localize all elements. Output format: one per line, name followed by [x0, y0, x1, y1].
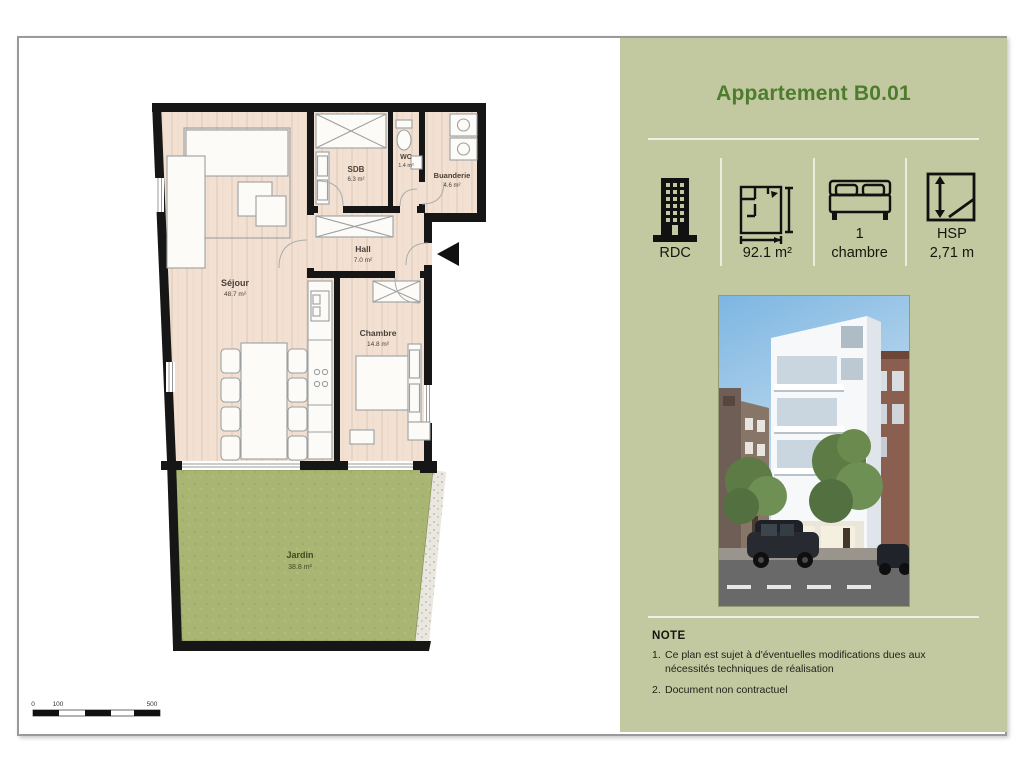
- note-item-2-number: 2.: [652, 684, 665, 698]
- room-area-buanderie: 4.6 m²: [443, 183, 460, 189]
- building-icon: [651, 176, 699, 244]
- scale-label-500: 500: [147, 701, 158, 708]
- note-item-2: 2. Document non contractuel: [652, 684, 975, 698]
- dining-table: [221, 343, 307, 460]
- spec-surface: 92.1 m²: [720, 158, 812, 266]
- spec-floor-line2: RDC: [659, 244, 690, 264]
- room-label-sejour: Séjour: [221, 278, 250, 288]
- floorplan-icon: [738, 176, 796, 244]
- note-heading: NOTE: [652, 630, 975, 642]
- floor-plan: Séjour 48.7 m² Chambre 14.8 m² SDB 6.3 m…: [0, 0, 620, 768]
- scale-bar: 0 100 500: [31, 701, 160, 716]
- room-area-jardin: 38.8 m²: [288, 564, 312, 571]
- shower: [316, 114, 386, 148]
- room-label-jardin: Jardin: [286, 550, 313, 560]
- note-item-2-text: Document non contractuel: [665, 684, 975, 698]
- note-item-1-text: Ce plan est sujet à d'éventuelles modifi…: [665, 649, 975, 677]
- scale-label-0: 0: [31, 701, 35, 708]
- spec-height-line2: 2,71 m: [930, 244, 974, 264]
- spec-height: HSP 2,71 m: [905, 158, 997, 266]
- room-area-chambre: 14.8 m²: [367, 341, 390, 348]
- kitchen-counter: [308, 281, 332, 459]
- garden: [176, 470, 446, 652]
- note-section: NOTE 1. Ce plan est sujet à d'éventuelle…: [652, 630, 975, 698]
- bathroom-sink: [316, 152, 329, 204]
- info-panel: Appartement B0.01: [620, 38, 1007, 732]
- room-area-wc: 1.4 m²: [398, 163, 414, 169]
- height-icon: [925, 157, 979, 225]
- building-photo: [719, 296, 909, 606]
- spec-floor: RDC: [630, 158, 720, 266]
- divider-bottom: [648, 616, 979, 618]
- spec-bedrooms-line2: chambre: [831, 244, 887, 264]
- page: Séjour 48.7 m² Chambre 14.8 m² SDB 6.3 m…: [0, 0, 1024, 768]
- room-label-chambre: Chambre: [360, 328, 397, 338]
- bed-icon: [827, 157, 893, 225]
- room-label-hall: Hall: [355, 244, 371, 254]
- spec-bedrooms: 1 chambre: [813, 158, 905, 266]
- room-label-buanderie: Buanderie: [434, 171, 471, 180]
- divider-top: [648, 138, 979, 140]
- room-area-sejour: 48.7 m²: [224, 291, 247, 298]
- wardrobe: [373, 281, 420, 302]
- hall-closet: [316, 216, 393, 237]
- spec-bedrooms-line1: 1: [856, 225, 864, 245]
- room-area-sdb: 6.3 m²: [347, 177, 364, 183]
- spec-row: RDC 92.1 m²: [630, 158, 997, 266]
- room-area-hall: 7.0 m²: [354, 257, 373, 264]
- room-label-wc: WC: [400, 154, 412, 161]
- spec-surface-line2: 92.1 m²: [743, 244, 792, 264]
- apartment-title: Appartement B0.01: [630, 82, 997, 110]
- spec-height-line1: HSP: [937, 225, 967, 245]
- scale-label-100: 100: [53, 701, 64, 708]
- entrance-arrow: [437, 242, 459, 266]
- note-item-1: 1. Ce plan est sujet à d'éventuelles mod…: [652, 649, 975, 677]
- note-item-1-number: 1.: [652, 649, 665, 677]
- room-label-sdb: SDB: [348, 165, 365, 174]
